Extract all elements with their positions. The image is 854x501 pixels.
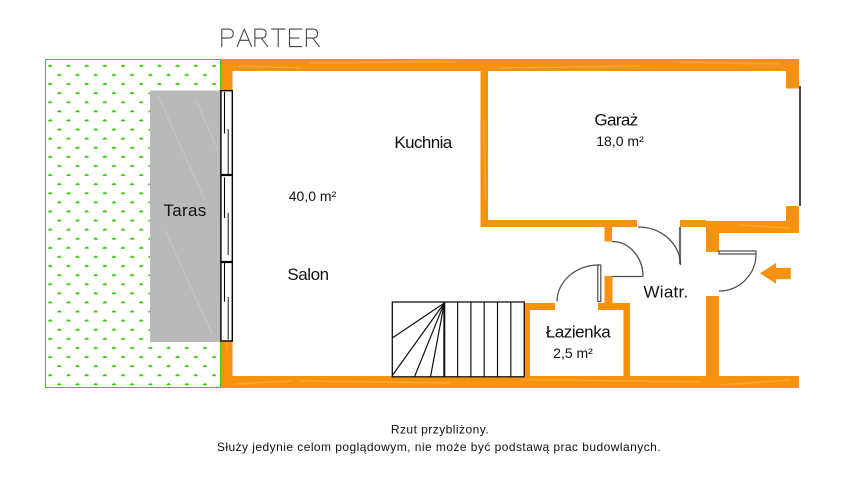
svg-text:Garaż: Garaż [594, 111, 637, 130]
svg-text:Kuchnia: Kuchnia [394, 133, 452, 152]
svg-text:Wiatr.: Wiatr. [643, 283, 688, 302]
svg-text:Taras: Taras [163, 201, 206, 220]
svg-text:Rzut przybliżony.: Rzut przybliżony. [391, 423, 489, 437]
svg-text:2,5 m²: 2,5 m² [553, 345, 593, 361]
svg-text:18,0 m²: 18,0 m² [596, 133, 644, 149]
svg-text:Służy jedynie celom poglądowym: Służy jedynie celom poglądowym, nie może… [217, 440, 661, 454]
svg-text:Łazienka: Łazienka [546, 323, 612, 342]
svg-text:40,0 m²: 40,0 m² [289, 188, 337, 204]
svg-text:Salon: Salon [287, 265, 328, 284]
